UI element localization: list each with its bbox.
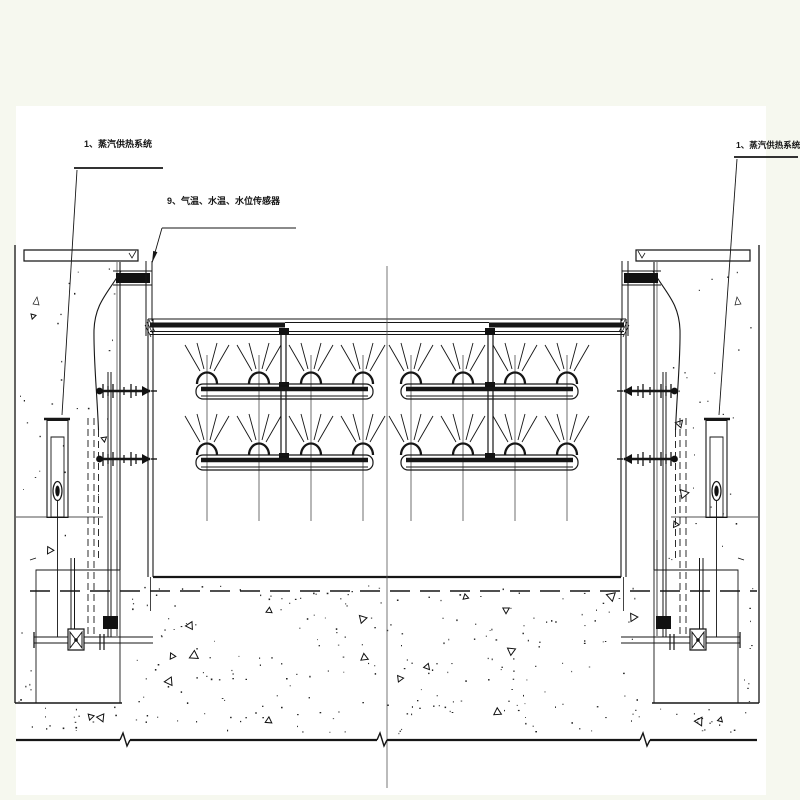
label-steam-system-right: 1、蒸汽供热系统 [736,140,800,151]
label-sensors: 9、气温、水温、水位传感器 [167,196,280,207]
pier-cap [24,250,138,261]
drawing-sheet: 1、蒸汽供热系统 9、气温、水温、水位传感器 1、蒸汽供热系统 [0,0,800,800]
pipe-fitting [103,616,118,629]
label-steam-system-left: 1、蒸汽供热系统 [84,139,152,150]
drawing-canvas [0,0,800,800]
